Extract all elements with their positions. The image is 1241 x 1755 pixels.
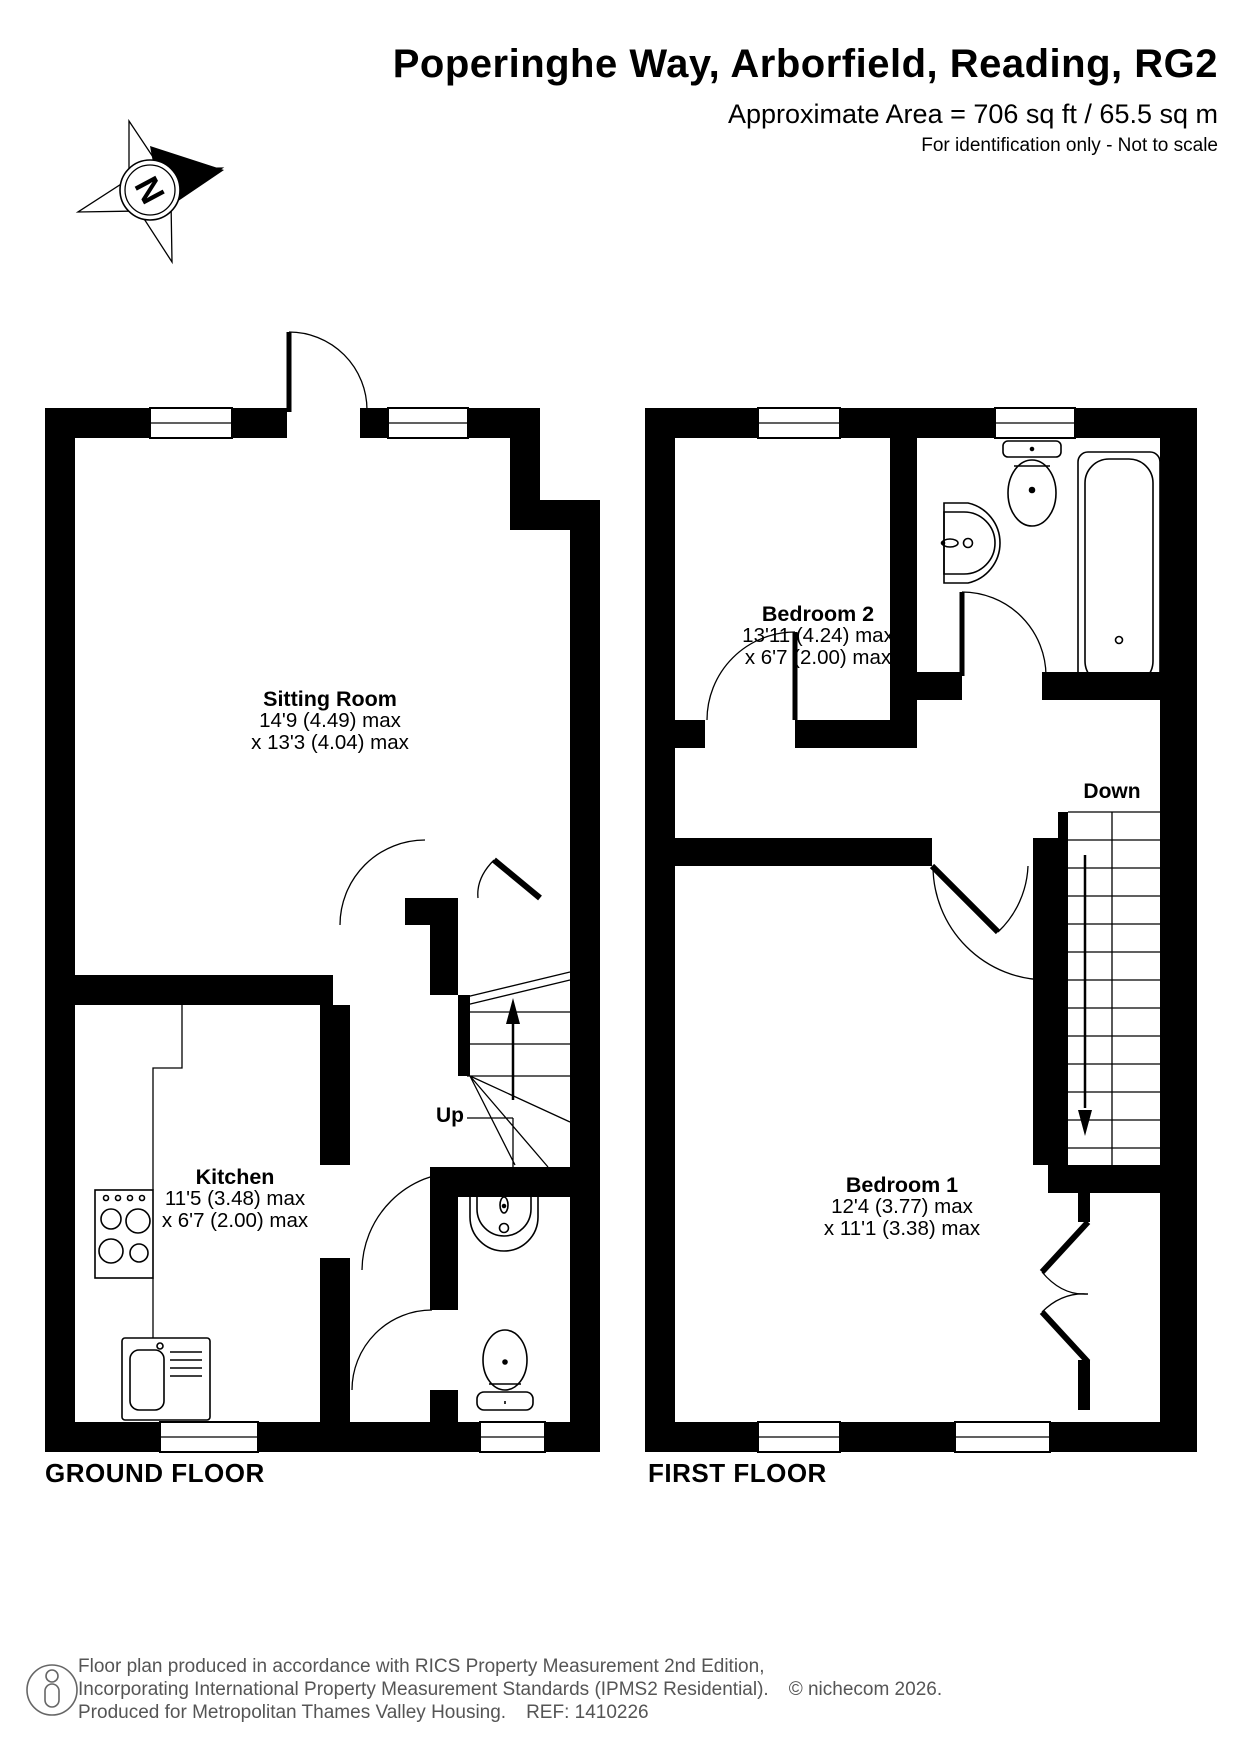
floorplan-page: N xyxy=(0,0,1241,1755)
kitchen-label: Kitchen 11'5 (3.48) max x 6'7 (2.00) max xyxy=(162,1166,308,1232)
bedroom-1-label: Bedroom 1 12'4 (3.77) max x 11'1 (3.38) … xyxy=(824,1174,980,1240)
cupboard-doors-icon xyxy=(1042,1222,1088,1362)
disclaimer-text: For identification only - Not to scale xyxy=(921,135,1218,157)
copyright-text: © nichecom 2026. xyxy=(789,1679,942,1700)
basin-icon xyxy=(942,503,1000,583)
sitting-room-label: Sitting Room 14'9 (4.49) max x 13'3 (4.0… xyxy=(251,688,409,754)
ground-floor-walls xyxy=(45,408,600,1452)
stairs-up-label: Up xyxy=(436,1104,464,1128)
reference-number: REF: 1410226 xyxy=(526,1702,649,1723)
ground-floor-plan xyxy=(45,332,600,1452)
hob-icon xyxy=(95,1190,153,1278)
bedroom-2-label: Bedroom 2 13'11 (4.24) max x 6'7 (2.00) … xyxy=(742,603,894,669)
front-door-icon xyxy=(289,332,367,412)
ground-floor-label: GROUND FLOOR xyxy=(45,1458,265,1489)
first-floor-walls xyxy=(645,408,1197,1452)
stairs-down-icon xyxy=(1068,812,1160,1165)
page-title: Poperinghe Way, Arborfield, Reading, RG2 xyxy=(393,42,1218,87)
toilet-icon xyxy=(1003,441,1061,526)
footer-line-1: Floor plan produced in accordance with R… xyxy=(78,1656,764,1678)
first-floor-plan xyxy=(645,408,1197,1452)
wc-basin-icon xyxy=(470,1197,538,1251)
first-floor-label: FIRST FLOOR xyxy=(648,1458,827,1489)
wc-toilet-icon xyxy=(477,1330,533,1410)
person-icon xyxy=(27,1665,77,1715)
stairs-up-icon xyxy=(462,972,570,1167)
approximate-area: Approximate Area = 706 sq ft / 65.5 sq m xyxy=(728,99,1218,130)
footer-line-3: Produced for Metropolitan Thames Valley … xyxy=(78,1702,649,1724)
stairs-down-label: Down xyxy=(1083,780,1140,804)
footer-line-2: Incorporating International Property Mea… xyxy=(78,1679,942,1701)
bath-icon xyxy=(1078,452,1160,692)
compass-icon: N xyxy=(78,121,224,262)
floorplan-graphics: N xyxy=(0,0,1241,1755)
kitchen-sink-icon xyxy=(122,1338,210,1420)
